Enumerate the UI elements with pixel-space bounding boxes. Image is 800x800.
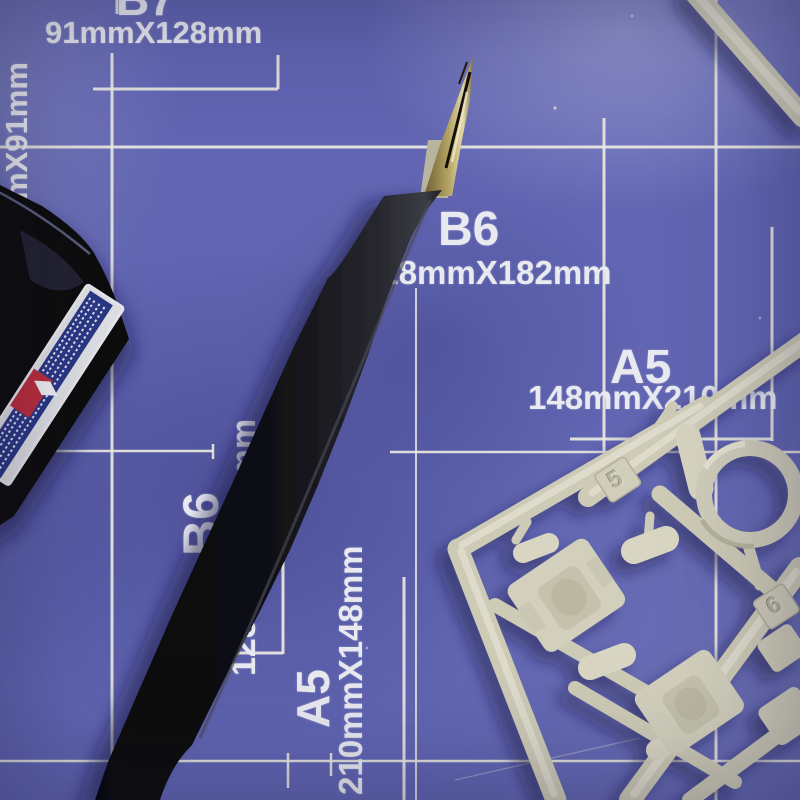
sprue-tag-digits: 5 6 [0, 0, 800, 800]
sprue-tag-6-digit: 6 [763, 592, 787, 619]
sprue-tag-5-digit: 5 [604, 466, 628, 493]
photo-cutting-mat-scene: B7 91mmX128mm 64mmX91mm B6 128mmX182mm B… [0, 0, 800, 800]
